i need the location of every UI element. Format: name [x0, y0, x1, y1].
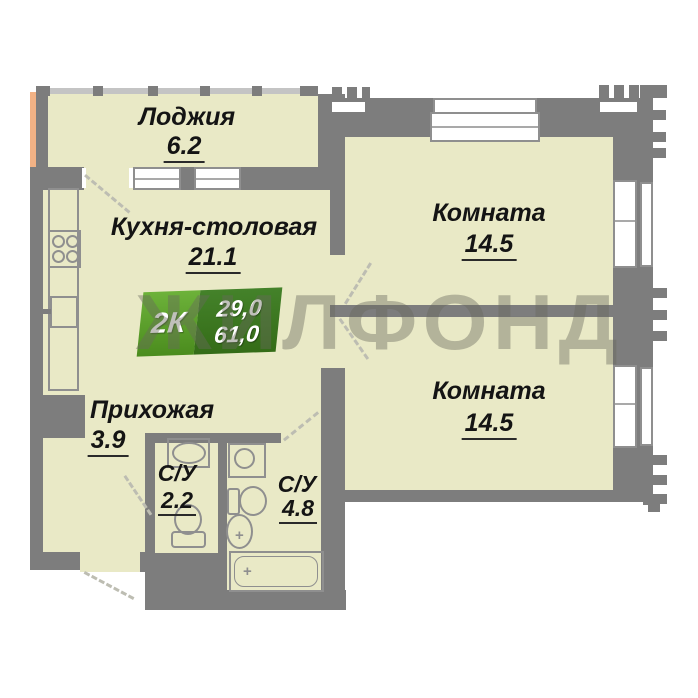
wall	[330, 490, 653, 502]
wall	[40, 167, 84, 190]
wall	[145, 433, 155, 570]
room-area-wc-big: 4.8	[279, 496, 317, 524]
wall	[30, 167, 43, 570]
facade-tooth	[629, 85, 639, 98]
facade-tooth	[362, 87, 370, 98]
window	[194, 167, 241, 190]
vent-slot	[332, 102, 365, 112]
stove-burner	[52, 250, 65, 263]
toilet-tank	[171, 531, 206, 548]
floor-plan: + + Лоджия 6.2 Кухня-столовая 21.1 Комна…	[0, 0, 698, 698]
drain-mark: +	[243, 564, 252, 579]
room-area-kitchen: 21.1	[186, 244, 241, 274]
wall	[218, 433, 227, 610]
wall	[241, 167, 330, 190]
entrance-door-swing	[84, 571, 135, 600]
facade-tooth	[347, 87, 357, 98]
facade-tooth	[653, 475, 667, 485]
kitchen-counter	[48, 188, 79, 391]
room-area-room2: 14.5	[462, 410, 517, 440]
facade-tooth	[614, 85, 624, 98]
wall	[181, 167, 194, 190]
facade-stub	[643, 283, 653, 345]
window-outer	[640, 182, 653, 267]
window	[133, 167, 181, 190]
facade-tooth	[653, 455, 667, 465]
window	[613, 180, 637, 268]
room-area-hallway: 3.9	[88, 427, 129, 457]
facade-tooth	[599, 85, 609, 98]
window	[613, 365, 637, 448]
room-label-loggia: Лоджия	[139, 104, 235, 130]
door-jamb	[129, 168, 133, 188]
facade-tooth	[648, 500, 660, 512]
room-area-room1: 14.5	[462, 231, 517, 261]
wall	[36, 92, 48, 167]
wall	[30, 552, 80, 570]
room-label-wc-big: С/У	[278, 472, 317, 496]
faucet-icon	[42, 309, 51, 314]
wall	[227, 433, 281, 443]
kitchen-sink-icon	[50, 296, 78, 328]
stove-burner	[66, 250, 79, 263]
room-label-wc-small: С/У	[158, 461, 197, 485]
room-area-wc-small: 2.2	[158, 488, 196, 516]
vent-slot	[600, 102, 637, 112]
facade-tooth	[653, 148, 666, 158]
stove-burner	[66, 235, 79, 248]
faucet-mark: +	[235, 528, 244, 543]
room-label-room2: Комната	[432, 378, 545, 404]
facade-tooth	[653, 132, 666, 142]
wall	[321, 368, 345, 610]
room-label-room1: Комната	[432, 200, 545, 226]
room-area-loggia: 6.2	[164, 133, 205, 163]
facade-tooth	[640, 85, 667, 98]
rail-post	[252, 86, 262, 96]
window-outer	[640, 367, 653, 446]
washing-machine-drum	[234, 448, 255, 469]
facade-tooth	[653, 310, 667, 320]
wall-stub	[43, 395, 85, 438]
loggia-glazing-rail	[36, 88, 318, 94]
watermark: ЖИЛФОНД	[136, 283, 623, 361]
facade-tooth	[653, 288, 667, 298]
facade-tooth	[653, 331, 667, 341]
facade-tooth	[653, 110, 666, 120]
entrance-alcove-floor	[80, 552, 140, 572]
facade-tooth	[332, 87, 342, 98]
window-sill	[430, 112, 540, 142]
facade-stub	[643, 450, 653, 505]
room-label-kitchen: Кухня-столовая	[111, 214, 317, 240]
rail-post	[148, 86, 158, 96]
wall	[145, 553, 227, 610]
toilet-icon	[239, 486, 267, 516]
rail-post	[200, 86, 210, 96]
stove-burner	[52, 235, 65, 248]
room-label-hallway: Прихожая	[90, 397, 214, 423]
rail-post	[93, 86, 103, 96]
rail-post	[300, 86, 318, 96]
